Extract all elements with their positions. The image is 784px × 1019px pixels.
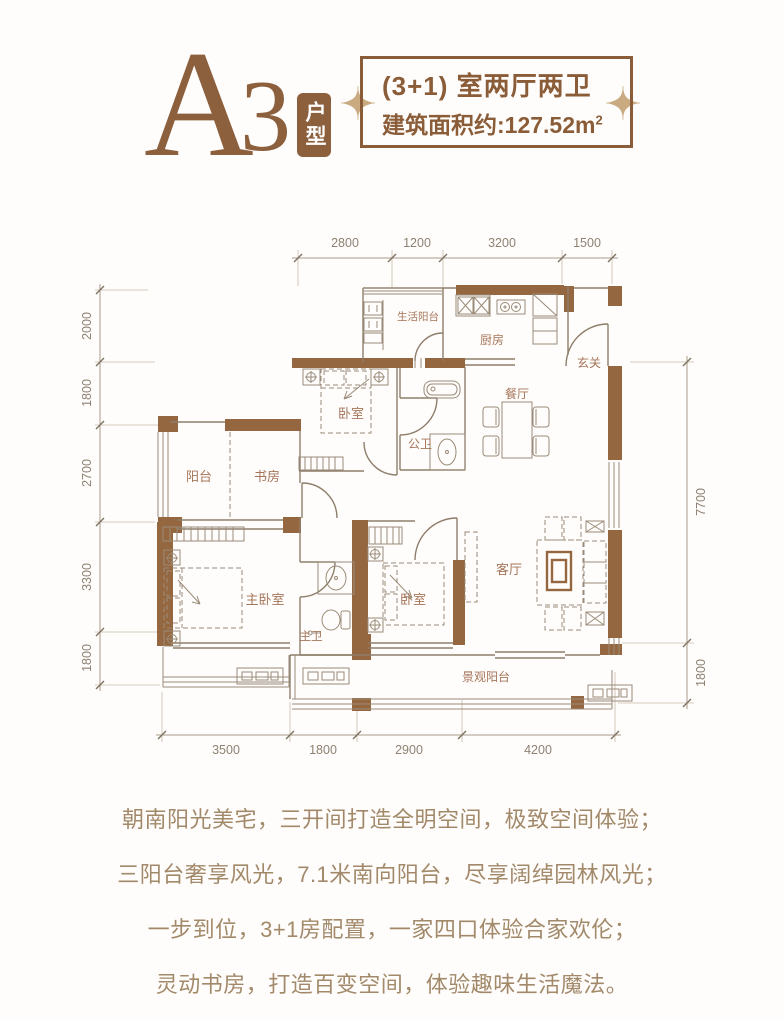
living-room-furniture (465, 517, 606, 630)
dim-label: 2900 (395, 743, 423, 757)
room-label-master-bath: 主卫 (300, 630, 323, 643)
room-label-balcony: 阳台 (186, 469, 212, 484)
floor-plan: 2800 1200 3200 1500 2000 1800 2700 3300 … (0, 230, 784, 770)
bedroom-right-furniture (368, 527, 444, 632)
dining-set (483, 402, 549, 458)
room-label-view-balcony: 景观阳台 (462, 669, 510, 684)
dim-label: 3300 (80, 563, 94, 591)
marketing-line: 朝南阳光美宅，三开间打造全明空间，极致空间体验； (0, 792, 784, 847)
dim-label: 3200 (488, 236, 516, 250)
room-label-bedroom-right: 卧室 (400, 592, 426, 607)
dimension-lines (96, 254, 691, 739)
unit-title-number: 3 (240, 66, 291, 168)
room-label-entry: 玄关 (577, 355, 601, 370)
unit-spec-box: (3+1) 室两厅两卫 建筑面积约:127.52m2 (360, 56, 633, 148)
dim-label: 2800 (331, 236, 359, 250)
room-label-study: 书房 (254, 469, 280, 484)
dim-label: 1800 (309, 743, 337, 757)
room-label-bedroom-top: 卧室 (338, 406, 364, 421)
unit-type-badge: 户型 (297, 93, 331, 157)
dim-label: 2000 (80, 312, 94, 340)
master-bedroom-furniture (163, 527, 244, 646)
dim-label: 1500 (573, 236, 601, 250)
dim-label: 1800 (80, 379, 94, 407)
marketing-line: 三阳台奢享风光，7.1米南向阳台，尽享阔绰园林风光； (0, 847, 784, 902)
windows (158, 288, 619, 709)
marketing-line: 灵动书房，打造百变空间，体验趣味生活魔法。 (0, 957, 784, 1012)
unit-spec-text: (3+1) 室两厅两卫 (382, 66, 630, 103)
dim-label: 1800 (694, 659, 708, 687)
dim-label: 7700 (694, 488, 708, 516)
room-label-living-room: 客厅 (496, 562, 522, 577)
dim-label: 4200 (524, 743, 552, 757)
room-label-public-bath: 公卫 (408, 437, 432, 451)
room-label-kitchen: 厨房 (480, 332, 504, 347)
interior-walls (170, 286, 608, 699)
kitchen-fixtures (364, 294, 557, 344)
unit-title-letter: A (144, 28, 254, 180)
walls (157, 285, 622, 711)
marketing-line: 一步到位，3+1房配置，一家四口体验合家欢伦； (0, 902, 784, 957)
room-label-dining: 餐厅 (505, 386, 529, 401)
room-label-master-bedroom: 主卧室 (245, 592, 284, 607)
dim-label: 1200 (403, 236, 431, 250)
floorplan-page: A 3 户型 (3+1) 室两厅两卫 建筑面积约:127.52m2 (0, 0, 784, 1019)
room-label-service-balcony: 生活阳台 (397, 310, 439, 323)
dim-label: 2700 (80, 459, 94, 487)
master-bath-fixtures (308, 562, 354, 635)
dim-label: 3500 (212, 743, 240, 757)
marketing-text: 朝南阳光美宅，三开间打造全明空间，极致空间体验； 三阳台奢享风光，7.1米南向阳… (0, 792, 784, 1012)
unit-area-text: 建筑面积约:127.52m2 (382, 106, 630, 140)
public-bath-fixtures (424, 381, 465, 470)
dim-label: 1800 (80, 644, 94, 672)
